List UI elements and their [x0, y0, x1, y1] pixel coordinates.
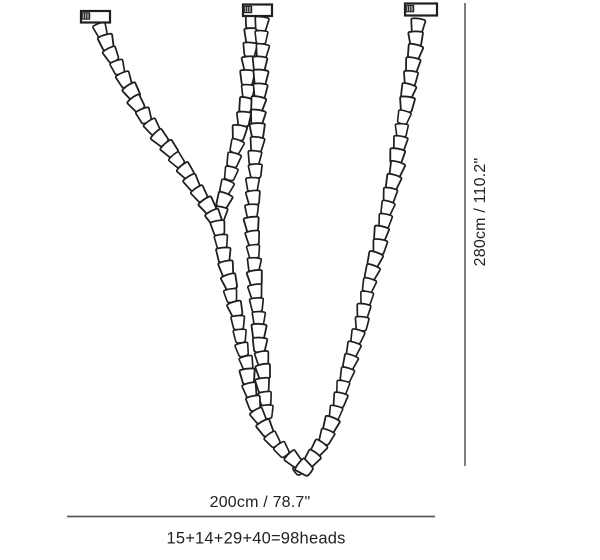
diagram-page: 280cm / 110.2" 200cm / 78.7" 15+14+29+40… [0, 0, 600, 560]
pendant-chains [92, 14, 425, 479]
canopy-middle [243, 5, 272, 17]
lamp-head [246, 244, 260, 259]
heads-count-label: 15+14+29+40=98heads [166, 530, 345, 548]
lamp-head [233, 329, 247, 344]
chain-segment-4-right-canopy [291, 18, 426, 478]
lamp-head [249, 297, 264, 312]
lamp-head [248, 164, 262, 179]
canopy-mount-icon [83, 13, 90, 19]
lamp-head [254, 30, 268, 44]
lamp-head [231, 315, 246, 330]
canopy-left [81, 11, 110, 23]
lamp-head [242, 42, 257, 58]
lamp-head [254, 16, 270, 32]
canopy-mount-icon [407, 6, 414, 12]
lamp-head [246, 177, 260, 191]
height-dimension-label: 280cm / 110.2" [472, 158, 489, 267]
canopy-right [405, 4, 437, 16]
width-dimension-label: 200cm / 78.7" [210, 494, 311, 511]
chain-segment-1-left-canopy [92, 21, 224, 228]
canopy-mount-icon [245, 6, 252, 12]
diagram-canvas: 280cm / 110.2" 200cm / 78.7" 15+14+29+40… [0, 0, 600, 560]
